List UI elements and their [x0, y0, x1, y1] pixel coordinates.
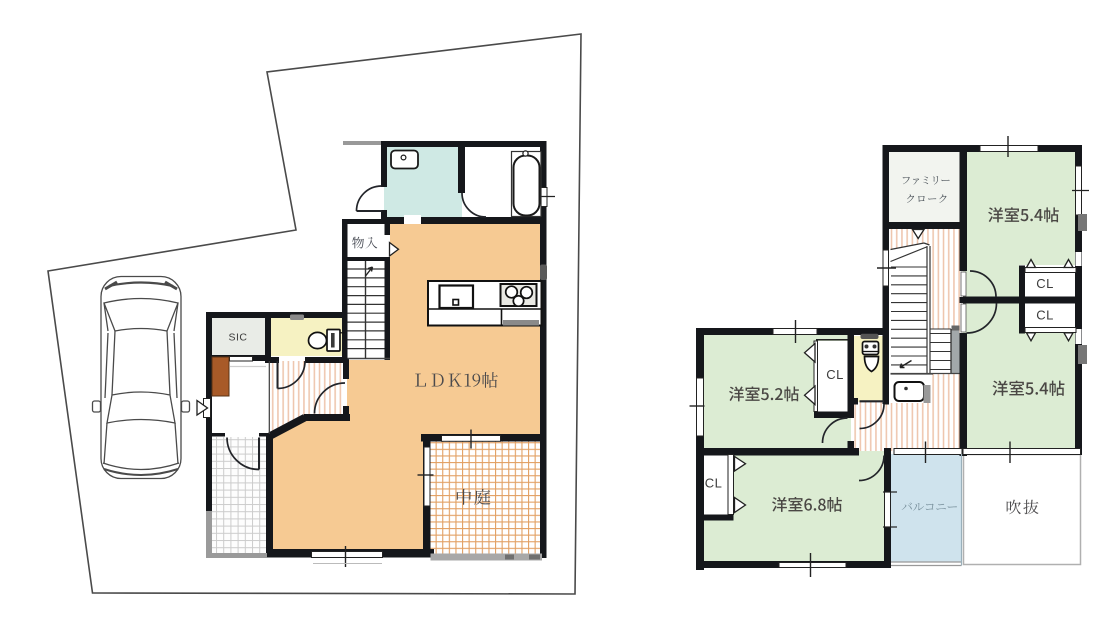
svg-text:CL: CL: [705, 476, 723, 491]
svg-text:CL: CL: [1036, 276, 1054, 291]
svg-text:CL: CL: [1036, 308, 1054, 323]
svg-text:CL: CL: [826, 367, 844, 382]
svg-text:SIC: SIC: [228, 332, 247, 344]
